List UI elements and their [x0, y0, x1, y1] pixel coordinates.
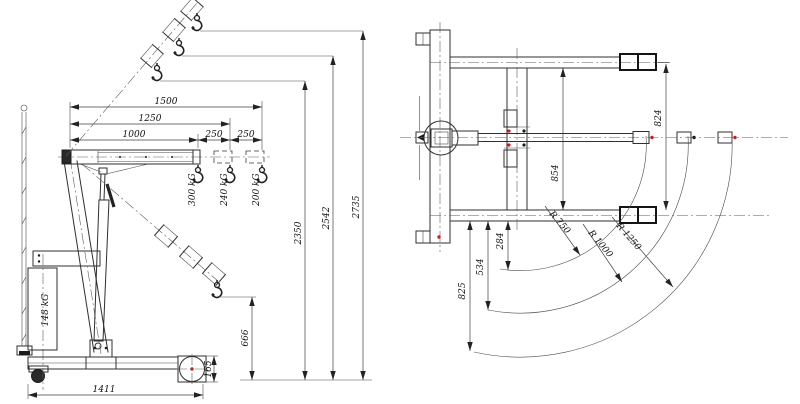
technical-drawing-page: 148 kG	[0, 0, 800, 404]
radius-callouts: R 750 R 1000 R 1250	[545, 206, 673, 287]
rear-caster-wheel	[32, 370, 45, 383]
capacity-label-1500: 200 kG	[252, 173, 262, 207]
capacity-label-1250: 240 kG	[220, 173, 230, 207]
top-view: R 750 R 1000 R 1250 854 824 284 534 825	[400, 22, 788, 357]
folded-boom-position	[82, 164, 225, 297]
mast-pivot-circle	[424, 121, 458, 155]
radius-label-1000: R 1000	[585, 228, 614, 260]
dim-boom-lengths: 1000 250 250 1250 1500	[70, 97, 262, 150]
dim-label-1250: 1250	[139, 114, 162, 124]
side-view: 148 kG	[17, 0, 372, 399]
boom: 300 kG 240 kG 200 kG	[58, 150, 270, 207]
plan-hub	[416, 96, 478, 180]
dim-label-824: 824	[654, 109, 664, 126]
dim-label-825: 825	[458, 282, 468, 299]
bolt-mark	[507, 143, 510, 146]
bolt-mark	[437, 235, 440, 238]
bolt-mark	[507, 129, 510, 132]
mast	[64, 158, 108, 354]
hook-icon	[191, 13, 202, 30]
dim-label-854: 854	[551, 164, 561, 181]
dim-label-1411: 1411	[93, 385, 116, 395]
dim-hook-low: 666	[219, 297, 256, 380]
dim-base-length: 1411	[28, 384, 203, 399]
dim-label-250b: 250	[236, 130, 254, 140]
dim-label-284: 284	[496, 232, 506, 250]
plan-mast	[504, 48, 530, 230]
hook-pin-mark	[650, 136, 653, 139]
hook-icon	[211, 280, 222, 297]
handle-grip	[21, 105, 27, 111]
arc-r1000	[488, 136, 688, 313]
dim-label-2735: 2735	[352, 195, 362, 219]
plan-frame	[416, 22, 772, 252]
dim-label-1000: 1000	[123, 130, 146, 140]
pump-handle	[107, 184, 114, 207]
dim-label-2542: 2542	[322, 206, 332, 230]
dim-label-2350: 2350	[294, 221, 304, 245]
radius-label-1250: R 1250	[613, 221, 643, 253]
hook-pin-mark	[733, 136, 736, 139]
counterweight-label: 148 kG	[41, 294, 51, 327]
radius-label-750: R 750	[546, 209, 572, 237]
crane-technical-drawing: 148 kG	[0, 0, 800, 404]
wheel-center-mark	[190, 367, 193, 370]
hook-icon	[173, 38, 184, 55]
plan-boom	[400, 132, 788, 144]
capacity-label-1000: 300 kG	[188, 173, 198, 206]
dim-label-666: 666	[241, 329, 251, 346]
dim-label-1500: 1500	[155, 97, 178, 107]
base-frame	[28, 340, 208, 385]
dim-label-165: 165	[204, 360, 214, 377]
handle-bar	[17, 105, 32, 355]
dim-label-534: 534	[476, 258, 486, 275]
arc-r750	[500, 136, 646, 271]
dim-label-250a: 250	[204, 130, 222, 140]
